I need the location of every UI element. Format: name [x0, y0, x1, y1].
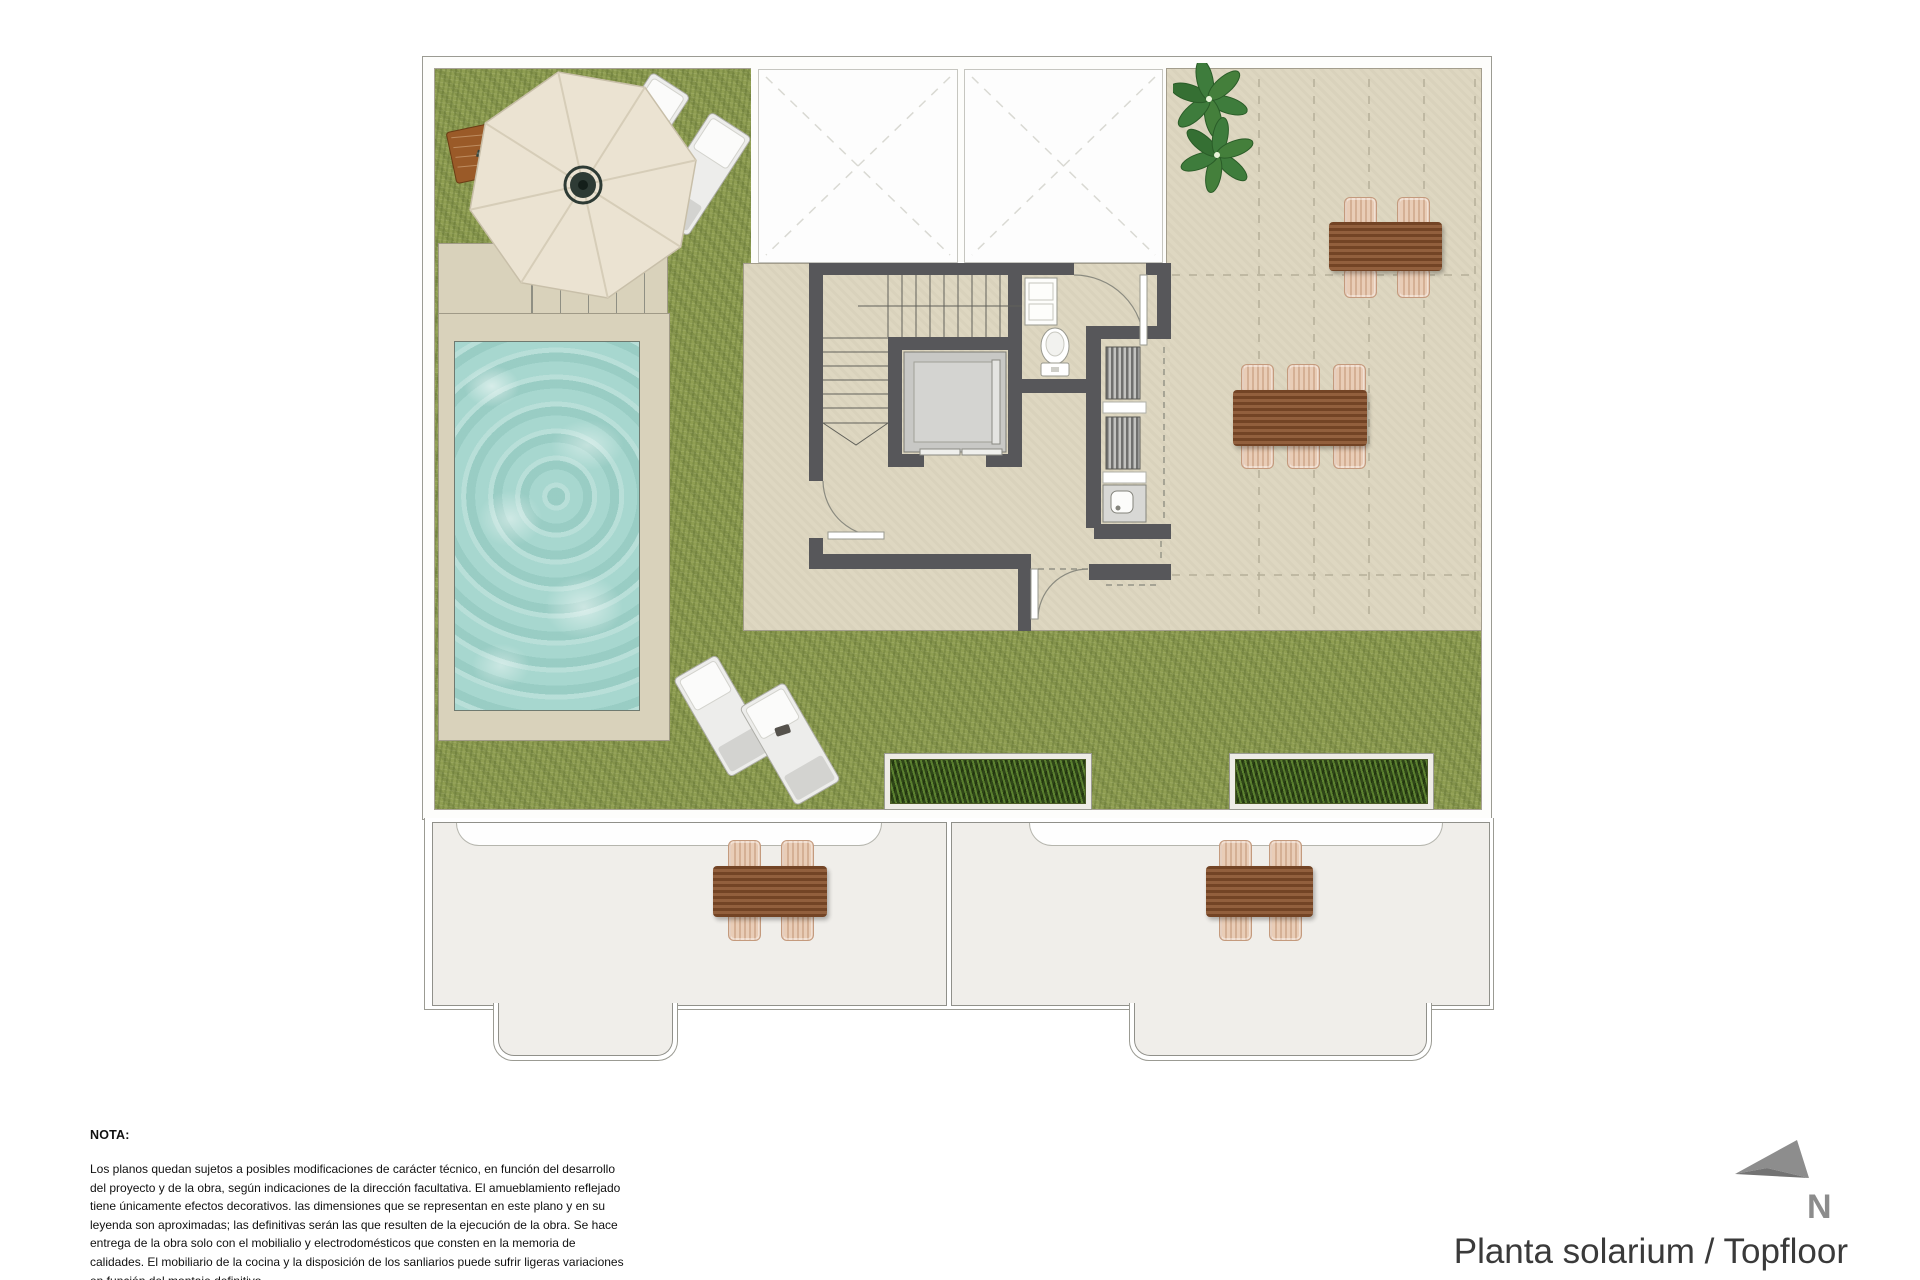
- swimming-pool: [454, 341, 640, 711]
- planter-box: [885, 754, 1091, 809]
- sink-icon: [1103, 485, 1146, 522]
- planter-box: [1230, 754, 1433, 809]
- plan-title: Planta solarium / Topfloor: [1280, 1232, 1848, 1272]
- washbasin-cabinet-icon: [1025, 278, 1057, 325]
- potted-plant-icon: [1173, 63, 1283, 193]
- plan-outline: [422, 56, 1492, 820]
- skylight-x-icon: [965, 70, 1162, 262]
- lower-stair-notch-floor: [1134, 1003, 1427, 1056]
- dining-table: [1329, 222, 1442, 271]
- lower-floor-outline: [424, 818, 1494, 1010]
- dining-table: [1206, 866, 1313, 917]
- parasol-icon: [441, 61, 711, 321]
- dining-table: [713, 866, 827, 917]
- stair-core: [806, 263, 1171, 631]
- dining-table: [1233, 390, 1367, 446]
- lower-stair-notch-floor: [498, 1003, 673, 1056]
- elevator-icon: [904, 352, 1006, 455]
- lower-stair-notch: [1129, 1003, 1432, 1061]
- skylight-void-left: [758, 69, 958, 263]
- lower-stair-notch: [493, 1003, 678, 1061]
- chair-icon: [1344, 267, 1377, 298]
- note-body: Los planos quedan sujetos a posibles mod…: [90, 1160, 630, 1280]
- terrace-canopy-band: [456, 823, 882, 846]
- toilet-icon: [1041, 328, 1069, 376]
- north-label: N: [1807, 1188, 1832, 1226]
- louver-unit-icon: [1103, 347, 1146, 483]
- floor-plan-page: NOTA: Los planos quedan sujetos a posibl…: [0, 0, 1920, 1280]
- note-heading: NOTA:: [90, 1128, 630, 1142]
- lower-room-left: [432, 822, 947, 1006]
- skylight-void-right: [964, 69, 1163, 263]
- north-arrow-icon: N: [1715, 1128, 1855, 1228]
- note-block: NOTA: Los planos quedan sujetos a posibl…: [90, 1128, 630, 1280]
- skylight-x-icon: [759, 70, 957, 262]
- chair-icon: [1397, 267, 1430, 298]
